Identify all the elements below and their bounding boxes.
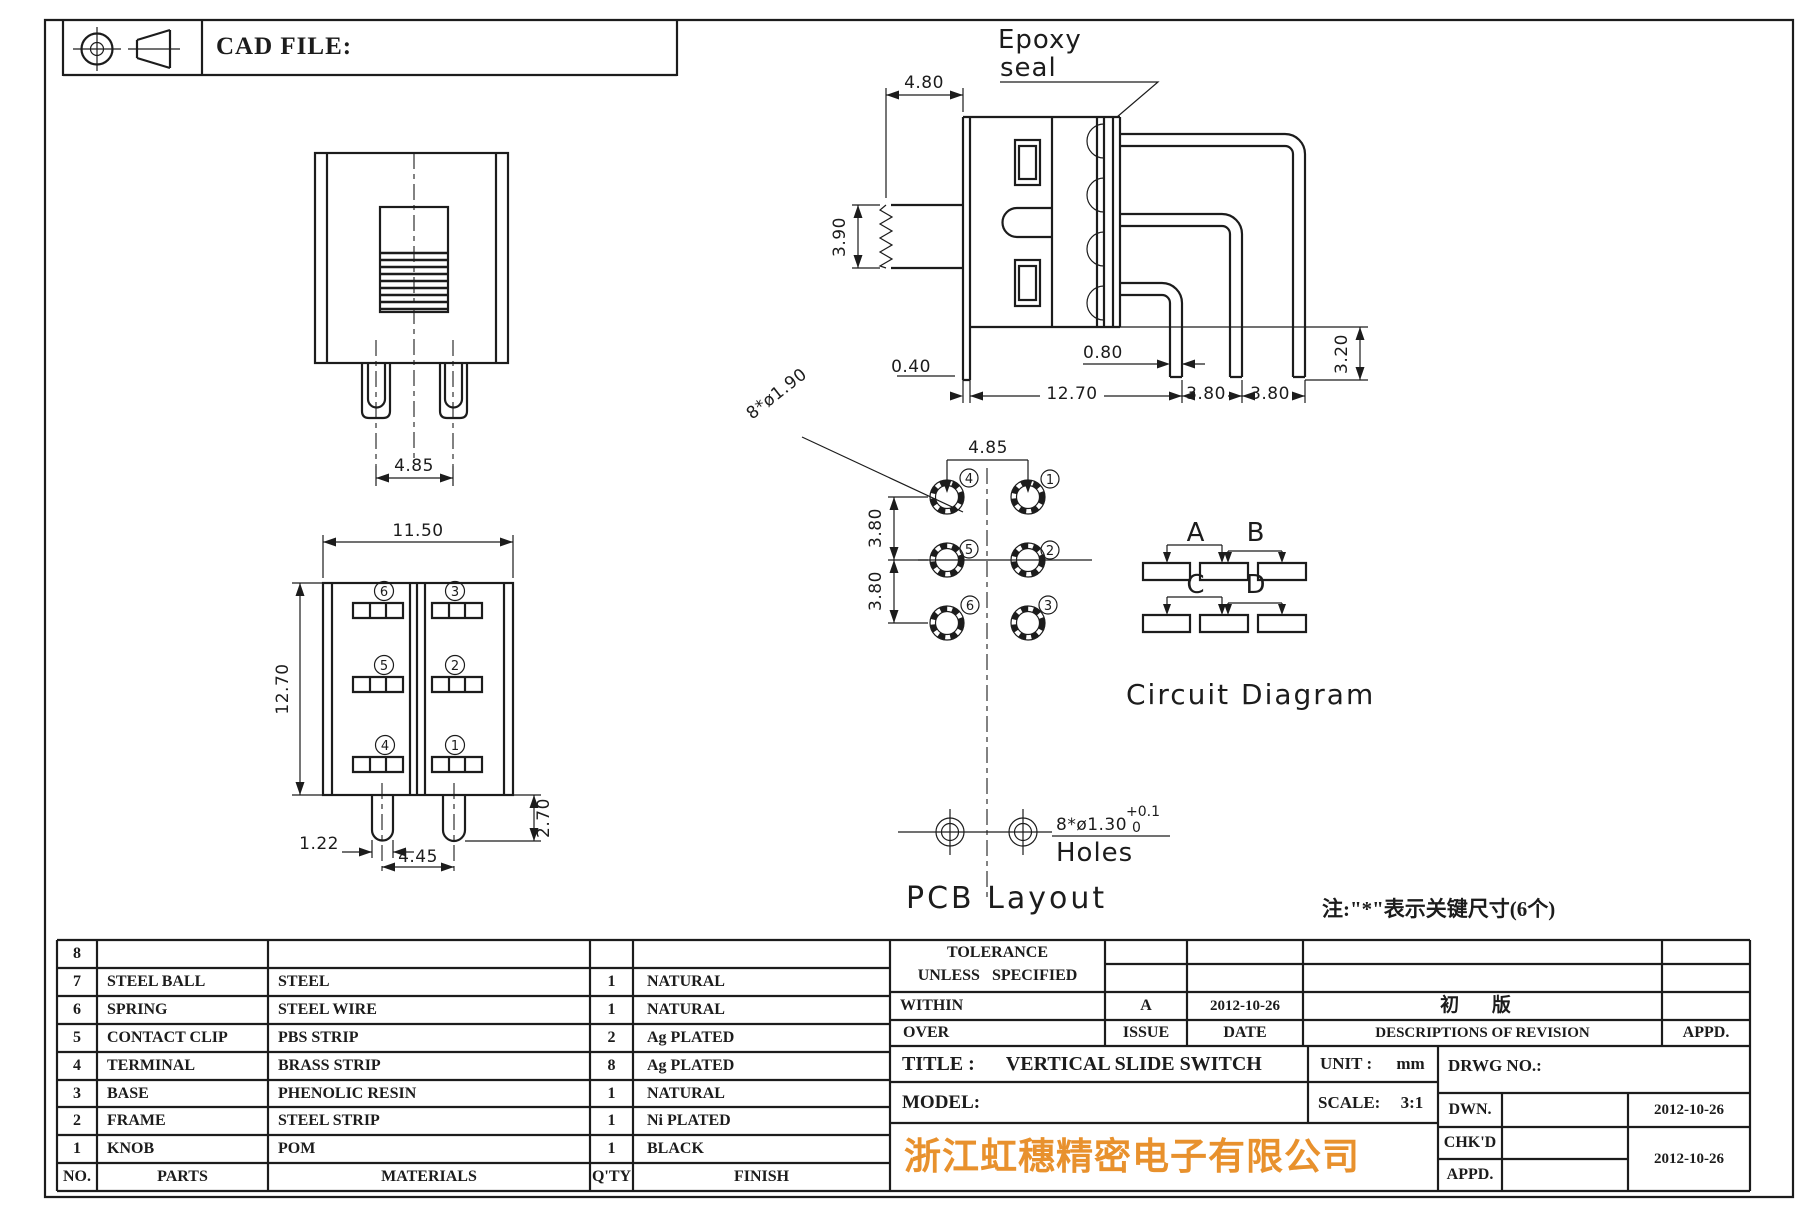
parts-row-finish: Ag PLATED	[647, 1052, 734, 1080]
svg-text:5: 5	[965, 543, 973, 558]
dim-bottom-pin-length: 2.70	[534, 798, 554, 838]
parts-row-no: 2	[57, 1107, 97, 1135]
revision-issue-value: A	[1105, 992, 1187, 1020]
svg-text:2: 2	[1046, 544, 1054, 559]
tolerance-over-label: OVER	[903, 1020, 949, 1046]
terminal-number-balloons: 6 3 5 2 4 1	[375, 582, 465, 755]
dim-side-terminal-width: 0.80	[1083, 343, 1123, 363]
svg-text:2: 2	[451, 659, 459, 674]
tolerance-line1: TOLERANCE	[890, 944, 1105, 962]
svg-text:3: 3	[451, 585, 459, 600]
parts-row-qty: 2	[590, 1024, 633, 1052]
pcb-hole-callout: 8*ø1.90	[743, 364, 811, 424]
revision-description-value: 初 版	[1303, 992, 1662, 1020]
mount-holes-label: Holes	[1056, 838, 1133, 868]
parts-row-finish: Ag PLATED	[647, 1024, 734, 1052]
parts-header-materials: MATERIALS	[268, 1163, 590, 1191]
parts-row-part: FRAME	[107, 1107, 166, 1135]
parts-row-finish: NATURAL	[647, 1080, 725, 1107]
company-name: 浙江虹穗精密电子有限公司	[904, 1123, 1360, 1191]
dim-side-frame-tab: 0.40	[891, 357, 931, 377]
epoxy-seal-label-2: seal	[1000, 53, 1057, 83]
circuit-group-label-b: B	[1247, 518, 1266, 548]
dim-bottom-pin-width: 1.22	[299, 834, 339, 854]
parts-row-qty: 1	[590, 1080, 633, 1107]
scale-row: SCALE: 3:1	[1318, 1082, 1423, 1123]
unit-row: UNIT : mm	[1320, 1046, 1425, 1082]
parts-row-material: STEEL STRIP	[278, 1107, 380, 1135]
svg-text:3: 3	[1044, 599, 1052, 614]
parts-header-no: NO.	[57, 1163, 97, 1191]
dwn-date: 2012-10-26	[1628, 1093, 1750, 1127]
model-label: MODEL:	[902, 1082, 980, 1123]
appd-label: APPD.	[1438, 1159, 1502, 1191]
parts-row-no: 7	[57, 968, 97, 996]
parts-row-material: STEEL WIRE	[278, 996, 377, 1024]
parts-row-finish: NATURAL	[647, 968, 725, 996]
epoxy-seal-label: Epoxy	[998, 25, 1082, 55]
dim-bottom-width: 11.50	[392, 521, 443, 541]
mount-hole-callout: 8*ø1.30	[1056, 815, 1127, 835]
parts-row-part: SPRING	[107, 996, 167, 1024]
svg-text:1: 1	[451, 739, 459, 754]
revision-description-header: DESCRIPTIONS OF REVISION	[1303, 1020, 1662, 1046]
dim-side-pin-pitch-1: 3.80	[1186, 384, 1226, 404]
dwn-label: DWN.	[1438, 1093, 1502, 1127]
chk-appd-date: 2012-10-26	[1628, 1127, 1750, 1191]
circuit-diagram-title: Circuit Diagram	[1126, 678, 1375, 711]
dim-side-knob-height: 3.90	[830, 217, 850, 257]
dim-bottom-pin-spacing: 4.45	[398, 847, 438, 867]
dim-side-pin-pitch-2: 3.80	[1250, 384, 1290, 404]
title-value: VERTICAL SLIDE SWITCH	[1006, 1053, 1262, 1075]
parts-row-qty: 1	[590, 1135, 633, 1163]
mount-hole-tol-upper: +0.1	[1126, 804, 1160, 820]
parts-row-finish: NATURAL	[647, 996, 725, 1024]
parts-row-no: 1	[57, 1135, 97, 1163]
revision-date-value: 2012-10-26	[1187, 992, 1303, 1020]
svg-text:6: 6	[380, 585, 388, 600]
tolerance-within-label: WITHIN	[900, 992, 963, 1020]
drawing-sheet: 4.85 11.50 6 3 5 2 4 1	[0, 0, 1811, 1207]
parts-row-part: CONTACT CLIP	[107, 1024, 228, 1052]
parts-row-material: STEEL	[278, 968, 330, 996]
dim-front-pin-spacing: 4.85	[394, 456, 434, 476]
side-view-drawing: Epoxy seal 4.80 3.90 0.80 0.40 12.70 3.8…	[830, 25, 1368, 404]
parts-row-no: 3	[57, 1080, 97, 1107]
circuit-group-label-a: A	[1187, 518, 1206, 548]
parts-header-parts: PARTS	[97, 1163, 268, 1191]
parts-row-qty: 8	[590, 1052, 633, 1080]
parts-row-part: TERMINAL	[107, 1052, 195, 1080]
parts-row-part: STEEL BALL	[107, 968, 205, 996]
parts-header-qty: Q'TY	[590, 1163, 633, 1191]
revision-issue-header: ISSUE	[1105, 1020, 1187, 1046]
dim-pcb-col-spacing: 4.85	[968, 438, 1008, 458]
scale-label: SCALE:	[1318, 1093, 1380, 1112]
dim-bottom-height: 12.70	[273, 663, 293, 714]
epoxy-seal-arcs	[1087, 124, 1104, 320]
parts-row-material: POM	[278, 1135, 315, 1163]
parts-row-material: PHENOLIC RESIN	[278, 1080, 416, 1107]
dim-pcb-row-spacing-1: 3.80	[866, 508, 886, 548]
scale-value: 3:1	[1401, 1093, 1424, 1112]
parts-row-material: PBS STRIP	[278, 1024, 358, 1052]
parts-row-finish: Ni PLATED	[647, 1107, 731, 1135]
title-label: TITLE :	[902, 1053, 975, 1075]
svg-text:6: 6	[966, 599, 974, 614]
svg-text:4: 4	[381, 739, 389, 754]
drwg-no-label: DRWG NO.:	[1448, 1046, 1542, 1086]
title-row: TITLE : VERTICAL SLIDE SWITCH	[902, 1046, 1302, 1082]
key-dimension-note: 注:"*"表示关键尺寸(6个)	[1322, 893, 1555, 923]
dim-pcb-row-spacing-2: 3.80	[866, 571, 886, 611]
parts-row-no: 4	[57, 1052, 97, 1080]
pcb-layout-title: PCB Layout	[906, 881, 1107, 916]
parts-row-qty: 1	[590, 1107, 633, 1135]
circuit-group-label-c: C	[1186, 570, 1205, 600]
dim-side-pin-length: 3.20	[1332, 334, 1352, 374]
circuit-diagram-drawing: A B C D Circuit Diagram	[1126, 518, 1375, 711]
knob-serration-zigzag	[880, 205, 892, 268]
revision-date-header: DATE	[1187, 1020, 1303, 1046]
bottom-view-drawing: 11.50 6 3 5 2 4 1 12.70 1.22	[273, 521, 554, 872]
parts-row-no: 5	[57, 1024, 97, 1052]
cad-file-label: CAD FILE:	[216, 33, 352, 61]
parts-row-part: KNOB	[107, 1135, 154, 1163]
mount-hole-tol-lower: 0	[1132, 820, 1141, 836]
pcb-layout-drawing: 4 1 5 2 6 3 4.85 8*ø1.90 3.80 3.80	[743, 364, 1170, 916]
parts-header-finish: FINISH	[633, 1163, 890, 1191]
parts-row-part: BASE	[107, 1080, 149, 1107]
projection-symbol-icon	[73, 27, 180, 71]
tolerance-line2: UNLESS SPECIFIED	[890, 967, 1105, 985]
svg-text:1: 1	[1046, 473, 1054, 488]
parts-row-no: 8	[57, 940, 97, 968]
front-view-drawing: 4.85	[315, 153, 508, 486]
revision-appd-header: APPD.	[1662, 1020, 1750, 1046]
unit-value: mm	[1396, 1054, 1424, 1073]
unit-label: UNIT :	[1320, 1054, 1372, 1073]
parts-row-qty: 1	[590, 968, 633, 996]
svg-text:4: 4	[965, 472, 973, 487]
parts-row-finish: BLACK	[647, 1135, 704, 1163]
circuit-group-label-d: D	[1245, 570, 1266, 600]
dim-side-knob-width: 4.80	[904, 73, 944, 93]
parts-row-no: 6	[57, 996, 97, 1024]
svg-text:5: 5	[380, 659, 388, 674]
parts-row-qty: 1	[590, 996, 633, 1024]
chkd-label: CHK'D	[1438, 1127, 1502, 1159]
parts-row-material: BRASS STRIP	[278, 1052, 381, 1080]
dim-side-body-to-pin: 12.70	[1046, 384, 1097, 404]
